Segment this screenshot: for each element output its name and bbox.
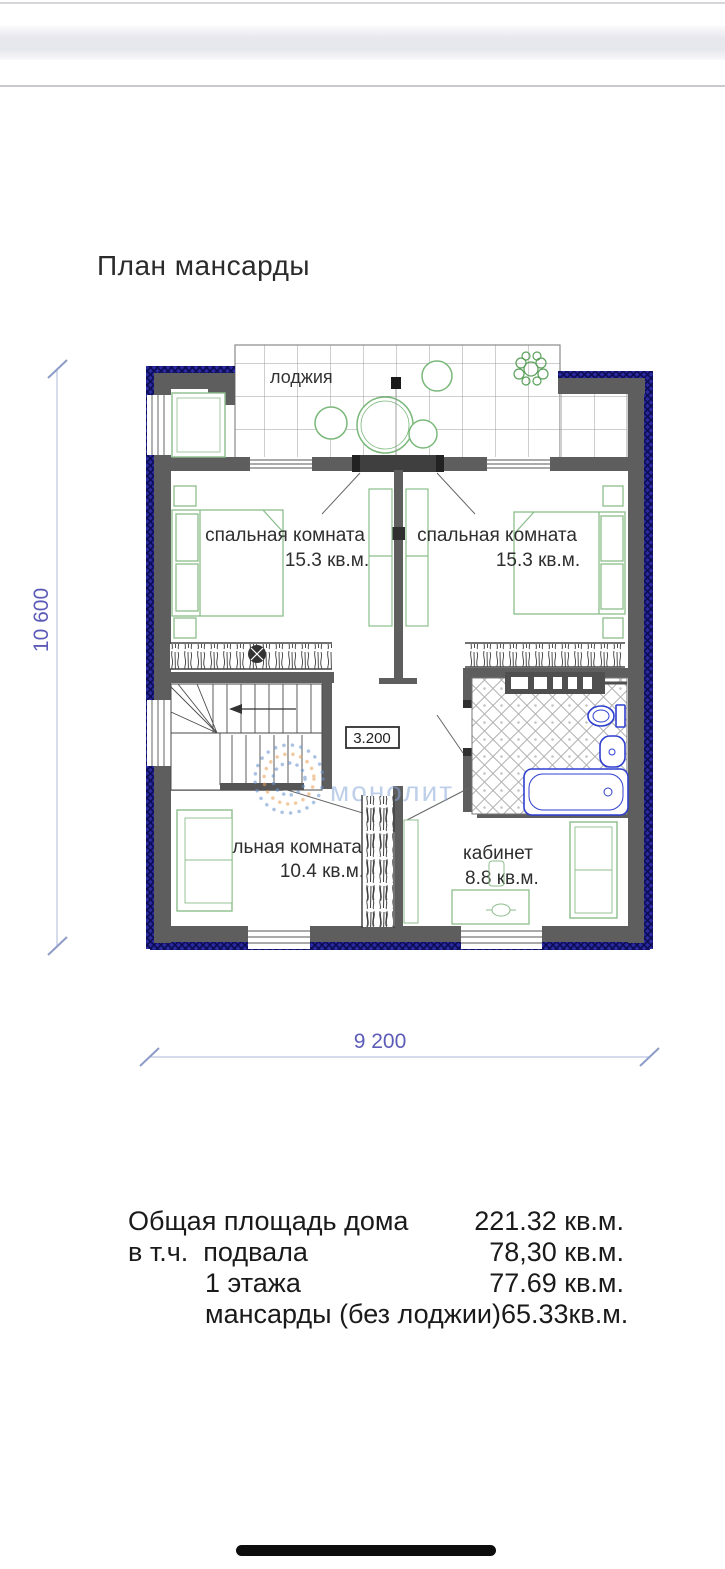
room-area: 15.3 кв.м. [285, 550, 369, 571]
closet-icon [362, 795, 394, 928]
room-area: 10.4 кв.м. [280, 861, 364, 882]
home-indicator[interactable] [236, 1545, 496, 1556]
level-mark-value: 3.200 [353, 730, 391, 747]
area-summary: Общая площадь дома 221.32 кв.м. в т.ч. п… [128, 1206, 624, 1330]
summary-label: мансарды (без лоджии) [128, 1299, 501, 1330]
room-area: 15.3 кв.м. [496, 550, 580, 571]
summary-value: 221.32 кв.м. [474, 1206, 624, 1237]
room-name: спальная комната [205, 525, 365, 546]
dimension-horizontal: 9 200 [140, 1030, 659, 1066]
summary-value: 77.69 кв.м. [489, 1268, 624, 1299]
slim-wardrobe-icon [404, 820, 418, 923]
summary-row: в т.ч. подвала 78,30 кв.м. [128, 1237, 624, 1268]
summary-row: 1 этажа 77.69 кв.м. [128, 1268, 624, 1299]
wardrobe-icon [172, 393, 225, 457]
closet-icon [465, 643, 625, 667]
office: кабинет 8.8 кв.м. [404, 820, 617, 924]
summary-label: Общая площадь дома [128, 1206, 408, 1237]
loggia: лоджия [235, 345, 627, 460]
summary-value: 65.33кв.м. [501, 1299, 628, 1330]
bathroom [472, 672, 628, 815]
summary-value: 78,30 кв.м. [489, 1237, 624, 1268]
summary-row: Общая площадь дома 221.32 кв.м. [128, 1206, 624, 1237]
dimension-height-label: 10 600 [30, 588, 53, 652]
sink-icon [600, 736, 625, 767]
summary-row: мансарды (без лоджии) 65.33кв.м. [128, 1299, 624, 1330]
window-loggia-right [487, 457, 550, 471]
sofa-icon [570, 822, 617, 918]
bedroom-3: спальная комната 10.4 кв.м. [177, 795, 394, 928]
window-left-top [147, 395, 172, 455]
bathtub-icon [524, 769, 628, 815]
dimension-width-label: 9 200 [354, 1030, 407, 1053]
window-loggia-left [250, 457, 312, 471]
level-mark: 3.200 [346, 727, 399, 748]
window-bottom-left [248, 926, 310, 949]
room-name: спальная комната [417, 525, 577, 546]
toilet-icon [588, 705, 625, 727]
closet-icon [170, 643, 332, 669]
summary-label: 1 этажа [128, 1268, 301, 1299]
bed-icon [172, 486, 283, 638]
staircase [171, 684, 322, 790]
bedroom-2: спальная комната 15.3 кв.м. [369, 486, 625, 667]
summary-label: в т.ч. подвала [128, 1237, 308, 1268]
sofa-icon [177, 810, 232, 911]
window-bottom-right [461, 926, 542, 949]
loggia-label: лоджия [270, 367, 333, 387]
floor-plan: 10 600 9 200 лоджия [0, 0, 725, 1569]
window-left-stairs [147, 700, 172, 766]
desk-icon [452, 890, 529, 924]
dimension-vertical: 10 600 [30, 360, 67, 955]
